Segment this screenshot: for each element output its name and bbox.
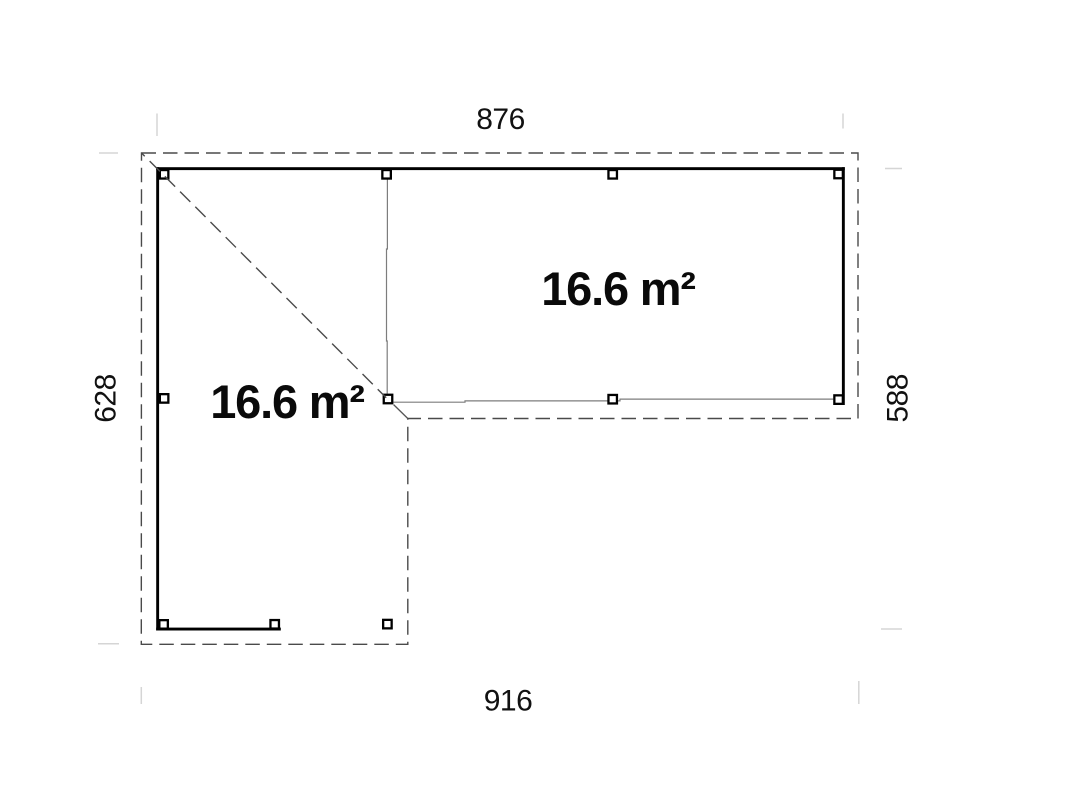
svg-text:16.6 m²: 16.6 m² (210, 375, 364, 428)
svg-text:16.6 m²: 16.6 m² (541, 262, 695, 315)
svg-text:628: 628 (89, 374, 122, 423)
svg-text:876: 876 (476, 103, 525, 136)
svg-text:588: 588 (882, 374, 915, 423)
svg-text:916: 916 (484, 685, 533, 718)
